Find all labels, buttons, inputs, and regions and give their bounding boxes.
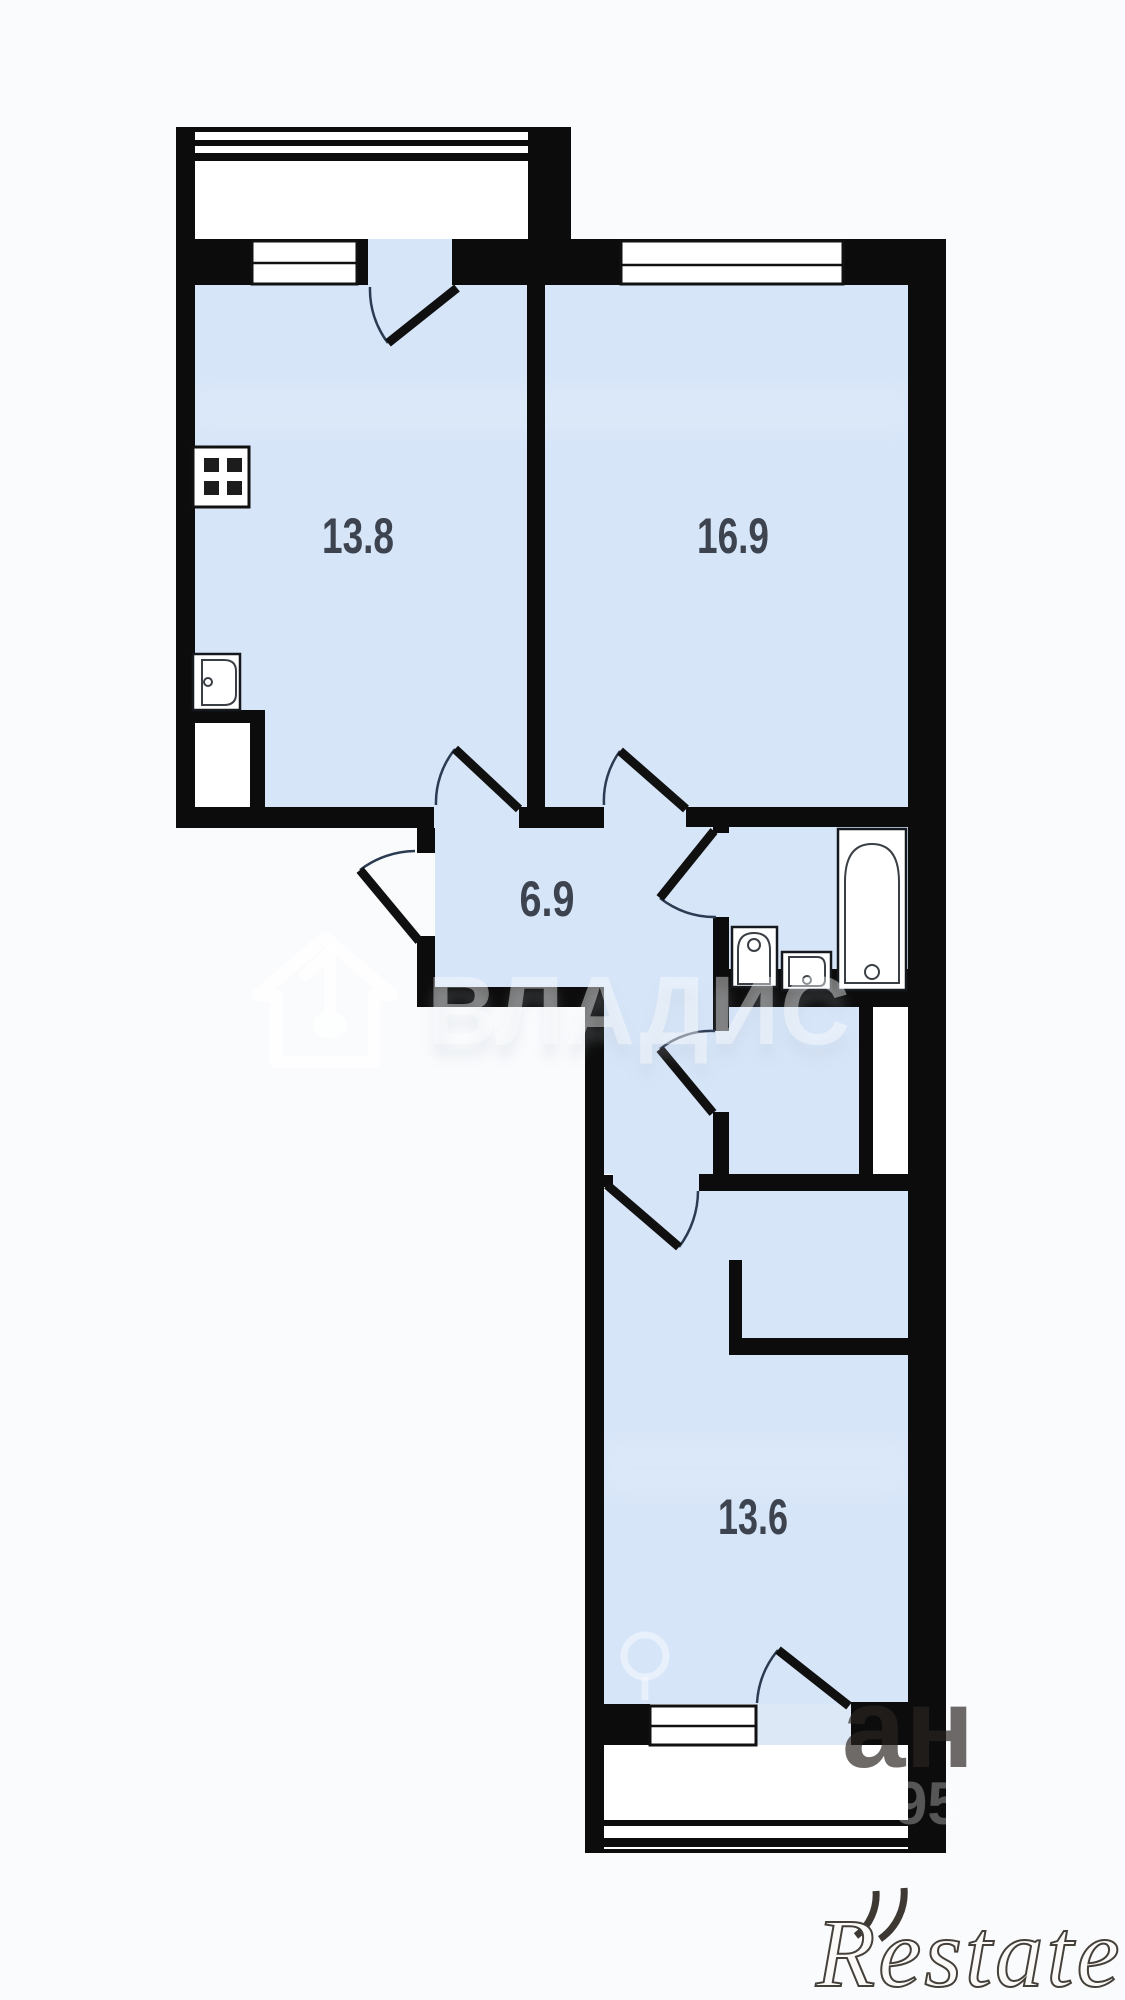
svg-text:13.6: 13.6 [718,1489,788,1545]
svg-text:Restate: Restate [815,1900,1123,2000]
svg-text:95: 95 [894,1770,961,1837]
svg-text:6.9: 6.9 [520,871,575,927]
svg-text:ВЛАДИС: ВЛАДИС [427,956,851,1065]
svg-text:13.8: 13.8 [322,508,394,564]
svg-text:16.9: 16.9 [697,508,769,564]
